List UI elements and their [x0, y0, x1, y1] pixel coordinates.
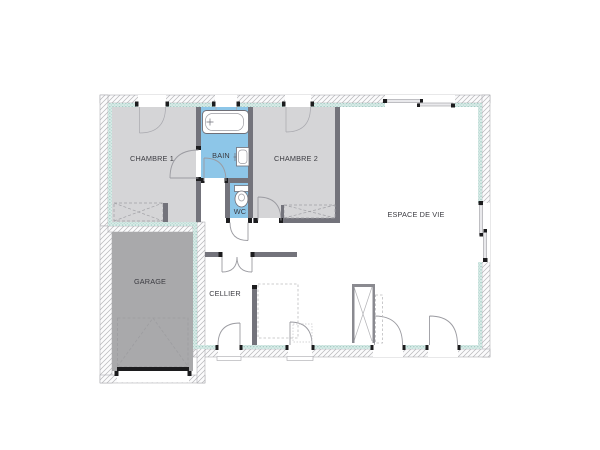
- room-label-chambre2: CHAMBRE 2: [274, 154, 318, 163]
- french-door-1-swing: [375, 316, 403, 345]
- french-door-2: [428, 345, 458, 357]
- door-cellier-double: [222, 257, 252, 272]
- door-cellier-exterior: [218, 323, 240, 345]
- room-label-bain: BAIN: [212, 151, 230, 160]
- wall-garage-right: [197, 222, 205, 383]
- window-chambre2: [285, 95, 311, 107]
- entry-mat: [293, 324, 312, 342]
- cellier-door-opening: [218, 345, 240, 357]
- bathtub-icon: [203, 111, 249, 134]
- french-door-2-swing: [430, 316, 458, 345]
- wardrobe-chambre1-side-wall: [163, 203, 168, 222]
- entry-door-opening: [288, 345, 312, 357]
- garage-door-opening: [117, 371, 189, 383]
- room-label-cellier: CELLIER: [209, 289, 240, 298]
- wardrobe-chambre2-side-wall: [281, 205, 284, 218]
- floor-garage: [112, 232, 193, 371]
- window-chambre1: [138, 95, 166, 107]
- window-bain: [215, 95, 237, 107]
- room-label-chambre1: CHAMBRE 1: [130, 154, 174, 163]
- room-label-garage: GARAGE: [134, 277, 166, 286]
- room-label-wc: WC: [234, 207, 246, 216]
- garage-door-panel: [117, 367, 189, 371]
- floor-chambre1: [112, 107, 196, 222]
- floor-plan-canvas: CHAMBRE 1 BAIN CHAMBRE 2 ESPACE DE VIE W…: [0, 0, 600, 450]
- floor-plan-drawing: CHAMBRE 1 BAIN CHAMBRE 2 ESPACE DE VIE W…: [0, 0, 600, 450]
- wall-garage-top: [108, 226, 193, 232]
- storage-closet: [352, 284, 375, 343]
- toilet-icon: [235, 186, 249, 208]
- room-floors: [112, 107, 335, 371]
- wall-left-lower: [100, 226, 112, 383]
- room-label-espace-de-vie: ESPACE DE VIE: [388, 210, 445, 219]
- door-wc: [230, 223, 248, 241]
- wall-left-upper: [100, 95, 108, 226]
- french-door-1: [373, 345, 403, 357]
- sliding-window-symbols: [387, 100, 487, 262]
